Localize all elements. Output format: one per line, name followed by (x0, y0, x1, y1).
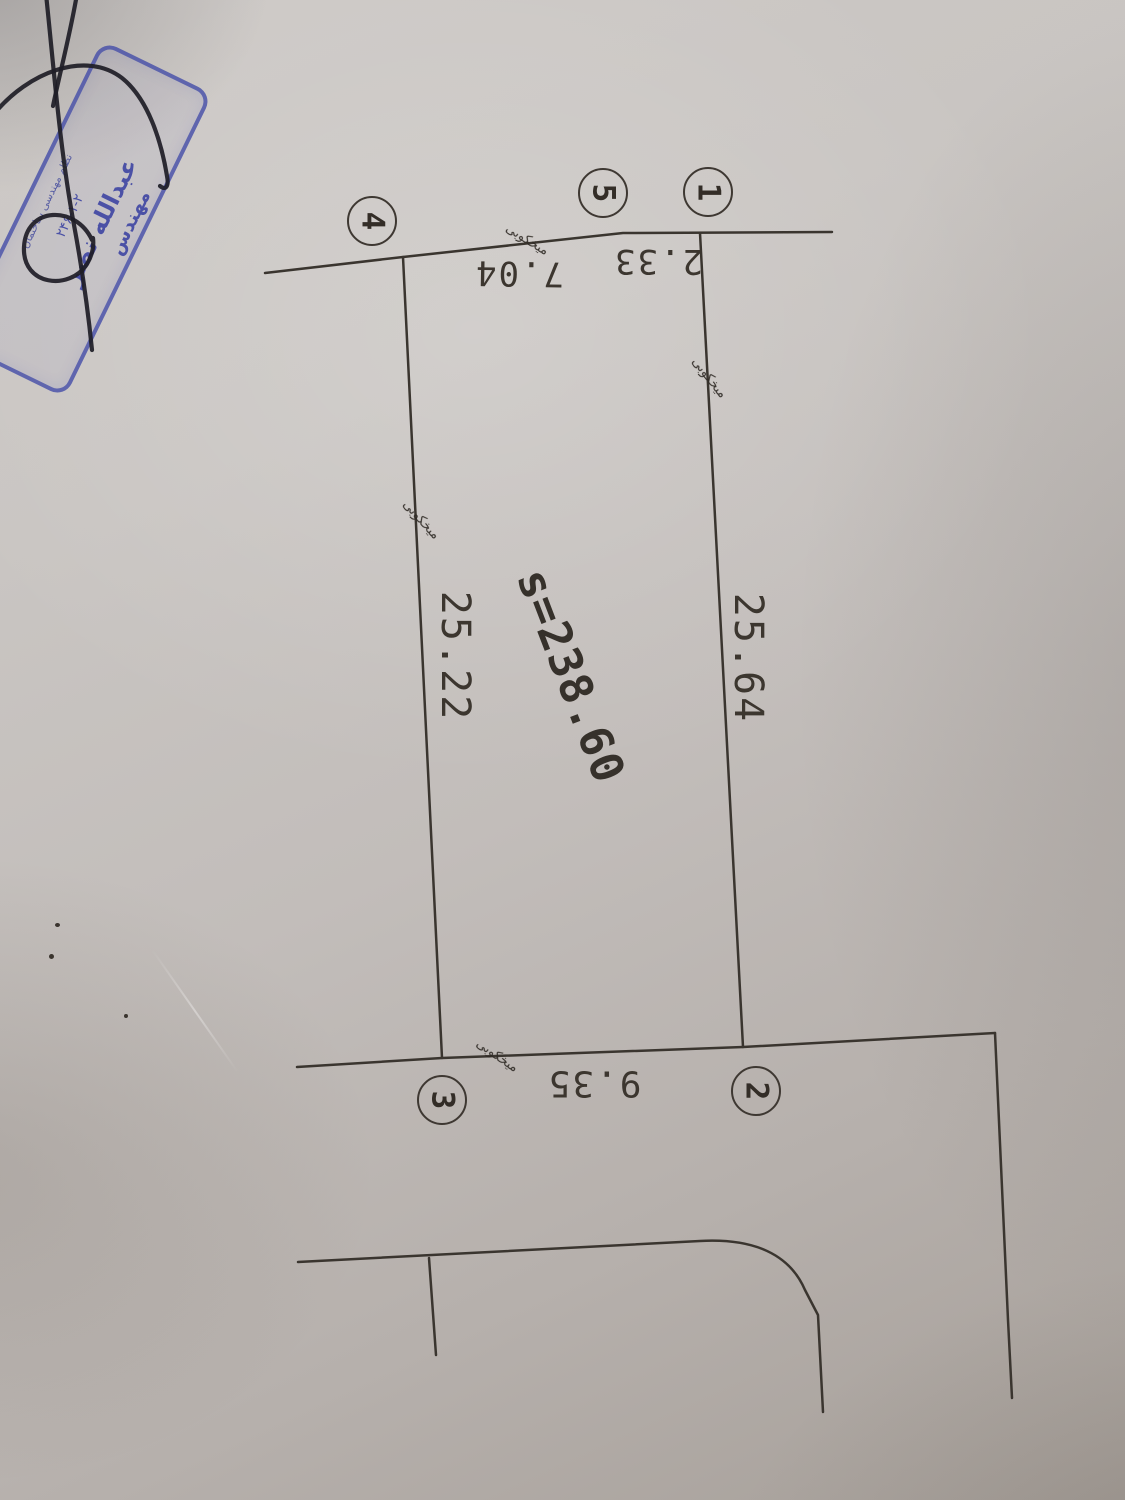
signature-stroke (53, 0, 77, 106)
signature-stroke (46, 0, 92, 350)
point-1-label: 1 (690, 183, 726, 202)
plot-linework (0, 0, 1125, 1500)
point-marker-5: 5 (578, 168, 628, 218)
signature-arc (0, 65, 168, 187)
dimension-top-1-5: 2.33 (613, 241, 703, 281)
point-2-label: 2 (738, 1082, 774, 1101)
dimension-left-side: 25.22 (432, 591, 478, 721)
dimension-top-5-4: 7.04 (474, 252, 565, 294)
lower-street-line (298, 1241, 823, 1412)
dimension-right-side: 25.64 (725, 593, 771, 723)
point-5-label: 5 (585, 184, 621, 203)
street-branch-line (429, 1258, 436, 1355)
dimension-bottom-3-2: 9.35 (547, 1063, 642, 1104)
signature-loop (24, 215, 93, 281)
point-marker-4: 4 (347, 196, 397, 246)
point-marker-2: 2 (731, 1066, 781, 1116)
bottom-boundary-line (297, 1033, 995, 1067)
point-marker-3: 3 (417, 1075, 467, 1125)
point-marker-1: 1 (683, 167, 733, 217)
right-neighbour-line (995, 1033, 1012, 1398)
point-4-label: 4 (354, 212, 390, 231)
scanned-survey-sheet: نظام مهندسی ساختمان ۲۴۶-۱-۲ عبدالله نصر … (0, 0, 1125, 1500)
point-3-label: 3 (424, 1091, 460, 1110)
